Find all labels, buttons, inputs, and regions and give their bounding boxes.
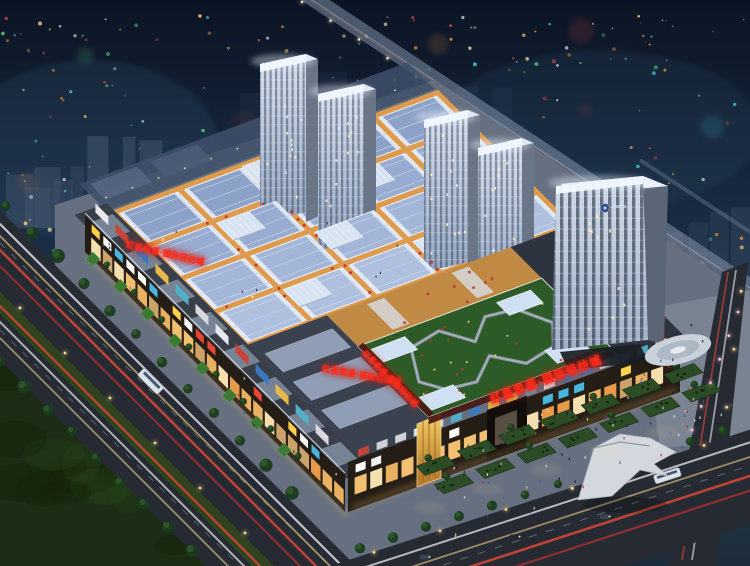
- pedestrian: [709, 372, 710, 374]
- pedestrian: [662, 407, 663, 410]
- pedestrian: [244, 377, 245, 379]
- street-lamp: [727, 334, 730, 337]
- walkway-umbrella: [491, 277, 494, 280]
- street-lamp: [154, 442, 157, 445]
- pedestrian: [650, 422, 651, 425]
- walkway-umbrella: [290, 210, 293, 213]
- pedestrian: [684, 410, 685, 412]
- garden-lamp: [450, 362, 452, 364]
- pedestrian: [293, 450, 294, 452]
- city-light: [698, 95, 700, 97]
- city-light: [663, 69, 666, 72]
- walkway-umbrella: [283, 294, 286, 297]
- city-light: [24, 221, 28, 225]
- pedestrian: [721, 414, 722, 417]
- pedestrian: [464, 496, 465, 499]
- city-light: [413, 20, 414, 21]
- city-light: [29, 219, 31, 221]
- city-light: [740, 237, 743, 240]
- pedestrian: [487, 473, 488, 476]
- pedestrian: [566, 412, 567, 415]
- pedestrian: [672, 391, 673, 394]
- city-light: [672, 173, 674, 175]
- pedestrian: [640, 381, 641, 384]
- city-light: [208, 32, 212, 36]
- pedestrian: [256, 289, 257, 291]
- walkway-umbrella: [418, 252, 421, 255]
- walkway-umbrella: [251, 295, 254, 298]
- highway-lamp: [386, 57, 388, 59]
- city-light: [63, 178, 66, 181]
- garden-flower: [430, 339, 432, 341]
- city-light: [636, 165, 640, 169]
- pedestrian: [663, 332, 664, 334]
- pedestrian: [243, 412, 244, 414]
- city-light: [48, 228, 52, 232]
- city-light: [602, 33, 606, 37]
- pedestrian: [450, 514, 451, 517]
- street-lamp: [733, 348, 736, 351]
- pedestrian: [375, 275, 376, 277]
- pedestrian: [644, 374, 645, 377]
- street-lamp: [505, 508, 508, 511]
- city-light: [542, 97, 546, 101]
- city-light: [103, 81, 106, 84]
- city-light: [105, 84, 108, 87]
- city-light: [580, 62, 582, 64]
- city-light: [384, 23, 388, 27]
- garden-lamp: [423, 393, 425, 395]
- pedestrian: [688, 387, 689, 389]
- city-light: [156, 38, 159, 41]
- pedestrian: [699, 416, 700, 419]
- walkway-umbrella: [426, 292, 429, 295]
- pedestrian: [139, 300, 140, 302]
- city-light: [358, 43, 360, 45]
- street-lamp: [725, 406, 728, 409]
- pedestrian: [672, 359, 673, 361]
- city-light: [339, 56, 342, 59]
- city-light: [639, 110, 641, 112]
- pedestrian: [660, 360, 661, 362]
- city-light: [709, 237, 713, 241]
- pedestrian: [662, 338, 663, 340]
- city-light: [106, 52, 110, 56]
- city-light: [450, 38, 453, 41]
- city-light: [69, 90, 72, 93]
- city-light: [332, 76, 334, 78]
- pedestrian: [587, 418, 588, 421]
- city-glow: [18, 172, 39, 193]
- city-light: [612, 47, 616, 51]
- pedestrian: [534, 507, 535, 510]
- city-light: [649, 147, 651, 149]
- city-light: [29, 195, 33, 199]
- city-light: [266, 37, 269, 40]
- pedestrian: [668, 366, 669, 368]
- city-light: [470, 27, 472, 29]
- city-light: [85, 38, 88, 41]
- pedestrian: [561, 453, 562, 456]
- street-lamp: [19, 307, 22, 310]
- city-light: [38, 22, 42, 26]
- pedestrian: [254, 424, 255, 426]
- city-light: [62, 99, 64, 101]
- city-light: [740, 245, 744, 249]
- pedestrian: [692, 369, 693, 371]
- city-light: [672, 25, 673, 26]
- pedestrian: [103, 244, 104, 246]
- city-light: [50, 116, 52, 118]
- city-light: [743, 19, 744, 20]
- pedestrian: [242, 291, 243, 293]
- pedestrian: [541, 413, 542, 416]
- city-light: [712, 31, 714, 33]
- walkway-umbrella: [466, 300, 469, 303]
- pedestrian: [263, 412, 264, 414]
- city-light: [227, 47, 230, 50]
- street-lamp: [703, 444, 706, 447]
- city-light: [414, 46, 418, 50]
- garden-lamp: [433, 369, 435, 371]
- pedestrian: [654, 378, 655, 381]
- walkway-umbrella: [403, 321, 406, 324]
- pedestrian: [687, 411, 688, 413]
- pedestrian: [619, 461, 620, 464]
- pedestrian: [693, 398, 694, 400]
- pedestrian: [456, 466, 457, 469]
- pedestrian: [540, 480, 541, 483]
- pedestrian: [327, 222, 328, 224]
- pedestrian: [437, 487, 438, 490]
- pedestrian: [638, 379, 639, 382]
- city-light: [1, 32, 5, 36]
- city-light: [20, 33, 22, 35]
- city-light: [612, 28, 614, 30]
- city-glow: [428, 34, 448, 54]
- city-light: [668, 182, 670, 184]
- city-light: [640, 22, 641, 23]
- pedestrian: [503, 442, 504, 445]
- pedestrian: [336, 473, 337, 475]
- pedestrian: [684, 414, 685, 416]
- car: [510, 535, 519, 540]
- city-light: [113, 67, 116, 70]
- walkway-umbrella: [296, 218, 299, 221]
- pedestrian: [397, 244, 398, 246]
- city-light: [512, 57, 515, 60]
- city-light: [59, 25, 62, 28]
- pedestrian: [109, 265, 110, 267]
- city-light: [630, 146, 633, 149]
- garden-flower: [444, 326, 446, 328]
- city-light: [546, 99, 547, 100]
- city-light: [610, 58, 611, 59]
- pedestrian: [482, 447, 483, 450]
- garden-lamp: [468, 321, 470, 323]
- pedestrian: [130, 287, 131, 289]
- pedestrian: [706, 418, 707, 420]
- city-light: [650, 35, 652, 37]
- street-lamp: [691, 429, 694, 432]
- city-light: [42, 156, 44, 158]
- city-light: [516, 61, 518, 63]
- city-glow: [569, 18, 594, 43]
- city-light: [14, 34, 16, 36]
- pedestrian: [553, 417, 554, 420]
- city-light: [468, 47, 471, 50]
- garden-flower: [458, 389, 460, 391]
- pedestrian: [501, 463, 502, 466]
- pedestrian: [641, 378, 642, 381]
- city-light: [473, 26, 476, 29]
- pedestrian: [454, 467, 455, 470]
- garden-flower: [441, 328, 443, 330]
- city-light: [139, 148, 141, 150]
- city-light: [726, 121, 729, 124]
- city-light: [201, 129, 204, 132]
- walkway-umbrella: [453, 285, 456, 288]
- garden-lamp: [466, 361, 468, 363]
- pedestrian: [683, 372, 684, 374]
- city-light: [119, 28, 121, 30]
- pedestrian: [464, 471, 465, 474]
- city-light: [654, 65, 658, 69]
- pedestrian: [682, 446, 683, 449]
- city-light: [34, 140, 37, 143]
- city-light: [22, 89, 25, 92]
- walkway-umbrella: [484, 281, 487, 284]
- pedestrian: [668, 336, 669, 338]
- city-light: [556, 64, 559, 67]
- street-lamp: [709, 381, 712, 384]
- pedestrian: [623, 437, 624, 440]
- city-light: [662, 19, 664, 21]
- pedestrian: [691, 324, 692, 326]
- city-light: [134, 24, 138, 28]
- city-light: [206, 16, 209, 19]
- street-lamp: [109, 397, 112, 400]
- pedestrian: [483, 449, 484, 452]
- pedestrian: [109, 243, 110, 245]
- pedestrian: [678, 434, 679, 437]
- car: [420, 555, 429, 560]
- pedestrian: [116, 270, 117, 272]
- pedestrian: [91, 247, 92, 249]
- city-light: [52, 69, 55, 72]
- city-light: [592, 23, 594, 25]
- pedestrian: [569, 443, 570, 446]
- city-light: [7, 172, 9, 174]
- pedestrian: [170, 307, 171, 309]
- walkway-umbrella: [430, 261, 433, 264]
- city-light: [565, 46, 568, 49]
- city-light: [281, 25, 284, 28]
- city-light: [203, 87, 205, 89]
- pedestrian: [628, 396, 629, 399]
- walkway-umbrella: [255, 263, 258, 266]
- walkway-umbrella: [303, 224, 306, 227]
- garden-lamp: [541, 303, 543, 305]
- city-light: [5, 17, 8, 20]
- pedestrian: [254, 399, 255, 401]
- pedestrian: [612, 424, 613, 427]
- walkway-umbrella: [237, 248, 240, 251]
- pedestrian: [455, 535, 456, 538]
- walkway-umbrella: [277, 287, 280, 290]
- pedestrian: [495, 440, 496, 443]
- pedestrian: [467, 445, 468, 448]
- city-glow: [77, 47, 94, 64]
- pedestrian: [661, 454, 662, 457]
- pedestrian: [605, 416, 606, 419]
- walkway-umbrella: [349, 271, 352, 274]
- street-lamp: [718, 358, 721, 361]
- city-light: [548, 23, 551, 26]
- street-lamp: [373, 551, 376, 554]
- pedestrian: [474, 438, 475, 441]
- city-light: [702, 178, 705, 181]
- city-light: [715, 233, 718, 236]
- walkway-umbrella: [315, 234, 318, 237]
- pedestrian: [583, 486, 584, 489]
- walkway-umbrella: [261, 203, 264, 206]
- pedestrian: [491, 446, 492, 449]
- pedestrian: [559, 430, 560, 433]
- city-light: [666, 59, 668, 61]
- pedestrian: [731, 403, 732, 405]
- city-light: [124, 94, 126, 96]
- city-light: [652, 71, 656, 75]
- city-light: [285, 49, 289, 53]
- city-light: [637, 15, 640, 18]
- city-light: [111, 85, 113, 87]
- city-light: [60, 97, 62, 99]
- walkway-umbrella: [162, 238, 165, 241]
- garden-flower: [560, 359, 562, 361]
- garden-flower: [426, 390, 428, 392]
- pedestrian: [596, 428, 597, 431]
- city-light: [130, 125, 131, 126]
- city-light: [654, 156, 658, 160]
- walkway-umbrella: [225, 305, 228, 308]
- pedestrian: [315, 456, 316, 458]
- city-light: [461, 16, 464, 19]
- city-light: [567, 53, 571, 57]
- city-light: [27, 49, 30, 52]
- city-light: [198, 14, 201, 17]
- city-light: [342, 34, 346, 38]
- architectural-rendering: 红星凯盛·国际轻纺城 红星凯盛·国际轻纺城 红星凯盛·国际轻纺城 红星凯盛·国际…: [0, 0, 750, 566]
- walkway-umbrella: [436, 268, 439, 271]
- city-light: [642, 35, 644, 37]
- pedestrian: [703, 400, 704, 402]
- walkway-umbrella: [472, 286, 475, 289]
- street-lamp: [737, 311, 740, 314]
- pedestrian: [665, 316, 666, 318]
- pedestrian: [674, 415, 675, 417]
- pedestrian: [457, 488, 458, 491]
- city-light: [645, 42, 646, 43]
- pedestrian: [702, 340, 703, 342]
- city-light: [552, 59, 556, 63]
- pedestrian: [176, 231, 177, 233]
- city-glow: [579, 103, 593, 117]
- city-light: [733, 103, 736, 106]
- garden-flower: [421, 354, 423, 356]
- city-light: [89, 166, 91, 168]
- city-light: [556, 99, 558, 101]
- highway-lamp: [358, 38, 360, 40]
- pedestrian: [572, 488, 573, 491]
- highway-lamp: [301, 1, 303, 3]
- city-light: [84, 115, 87, 118]
- street-lamp: [740, 290, 743, 293]
- pedestrian: [687, 425, 688, 428]
- pedestrian: [574, 480, 575, 483]
- street-lamp: [700, 405, 703, 408]
- pedestrian: [238, 394, 239, 396]
- garden-lamp: [494, 354, 496, 356]
- city-light: [525, 57, 529, 61]
- walkway-umbrella: [468, 271, 471, 274]
- pedestrian: [486, 448, 487, 451]
- pedestrian: [535, 432, 536, 435]
- pedestrian: [380, 272, 381, 274]
- city-light: [105, 18, 107, 20]
- city-light: [49, 28, 51, 30]
- pedestrian: [491, 502, 492, 505]
- pedestrian: [530, 511, 531, 514]
- garden-lamp: [463, 393, 465, 395]
- street-lamp: [244, 532, 247, 535]
- city-light: [141, 120, 144, 123]
- pedestrian: [585, 456, 586, 459]
- walkway-umbrella: [331, 267, 334, 270]
- garden-flower: [456, 373, 458, 375]
- city-glow: [700, 115, 724, 139]
- garden-flower: [516, 342, 518, 344]
- city-light: [542, 116, 545, 119]
- garden-flower: [447, 339, 449, 341]
- city-light: [522, 34, 526, 38]
- walkway-umbrella: [206, 222, 209, 225]
- city-light: [665, 20, 667, 22]
- pedestrian: [538, 420, 539, 423]
- pedestrian: [558, 477, 559, 480]
- city-light: [508, 69, 510, 71]
- highway-lamp: [329, 20, 331, 22]
- city-light: [534, 62, 538, 66]
- pedestrian: [596, 405, 597, 408]
- car: [600, 515, 609, 520]
- city-light: [64, 190, 67, 193]
- pedestrian: [526, 458, 527, 461]
- street-lamp: [199, 487, 202, 490]
- pedestrian: [201, 343, 202, 345]
- garden-flower: [461, 368, 463, 370]
- city-light: [473, 62, 477, 66]
- pedestrian: [569, 458, 570, 461]
- walkway-umbrella: [225, 215, 228, 218]
- pedestrian: [487, 514, 488, 517]
- garden-lamp: [506, 335, 508, 337]
- street-lamp: [64, 352, 67, 355]
- walkway-umbrella: [343, 264, 346, 267]
- pedestrian: [694, 419, 695, 421]
- city-light: [73, 34, 76, 37]
- street-lamp: [439, 529, 442, 532]
